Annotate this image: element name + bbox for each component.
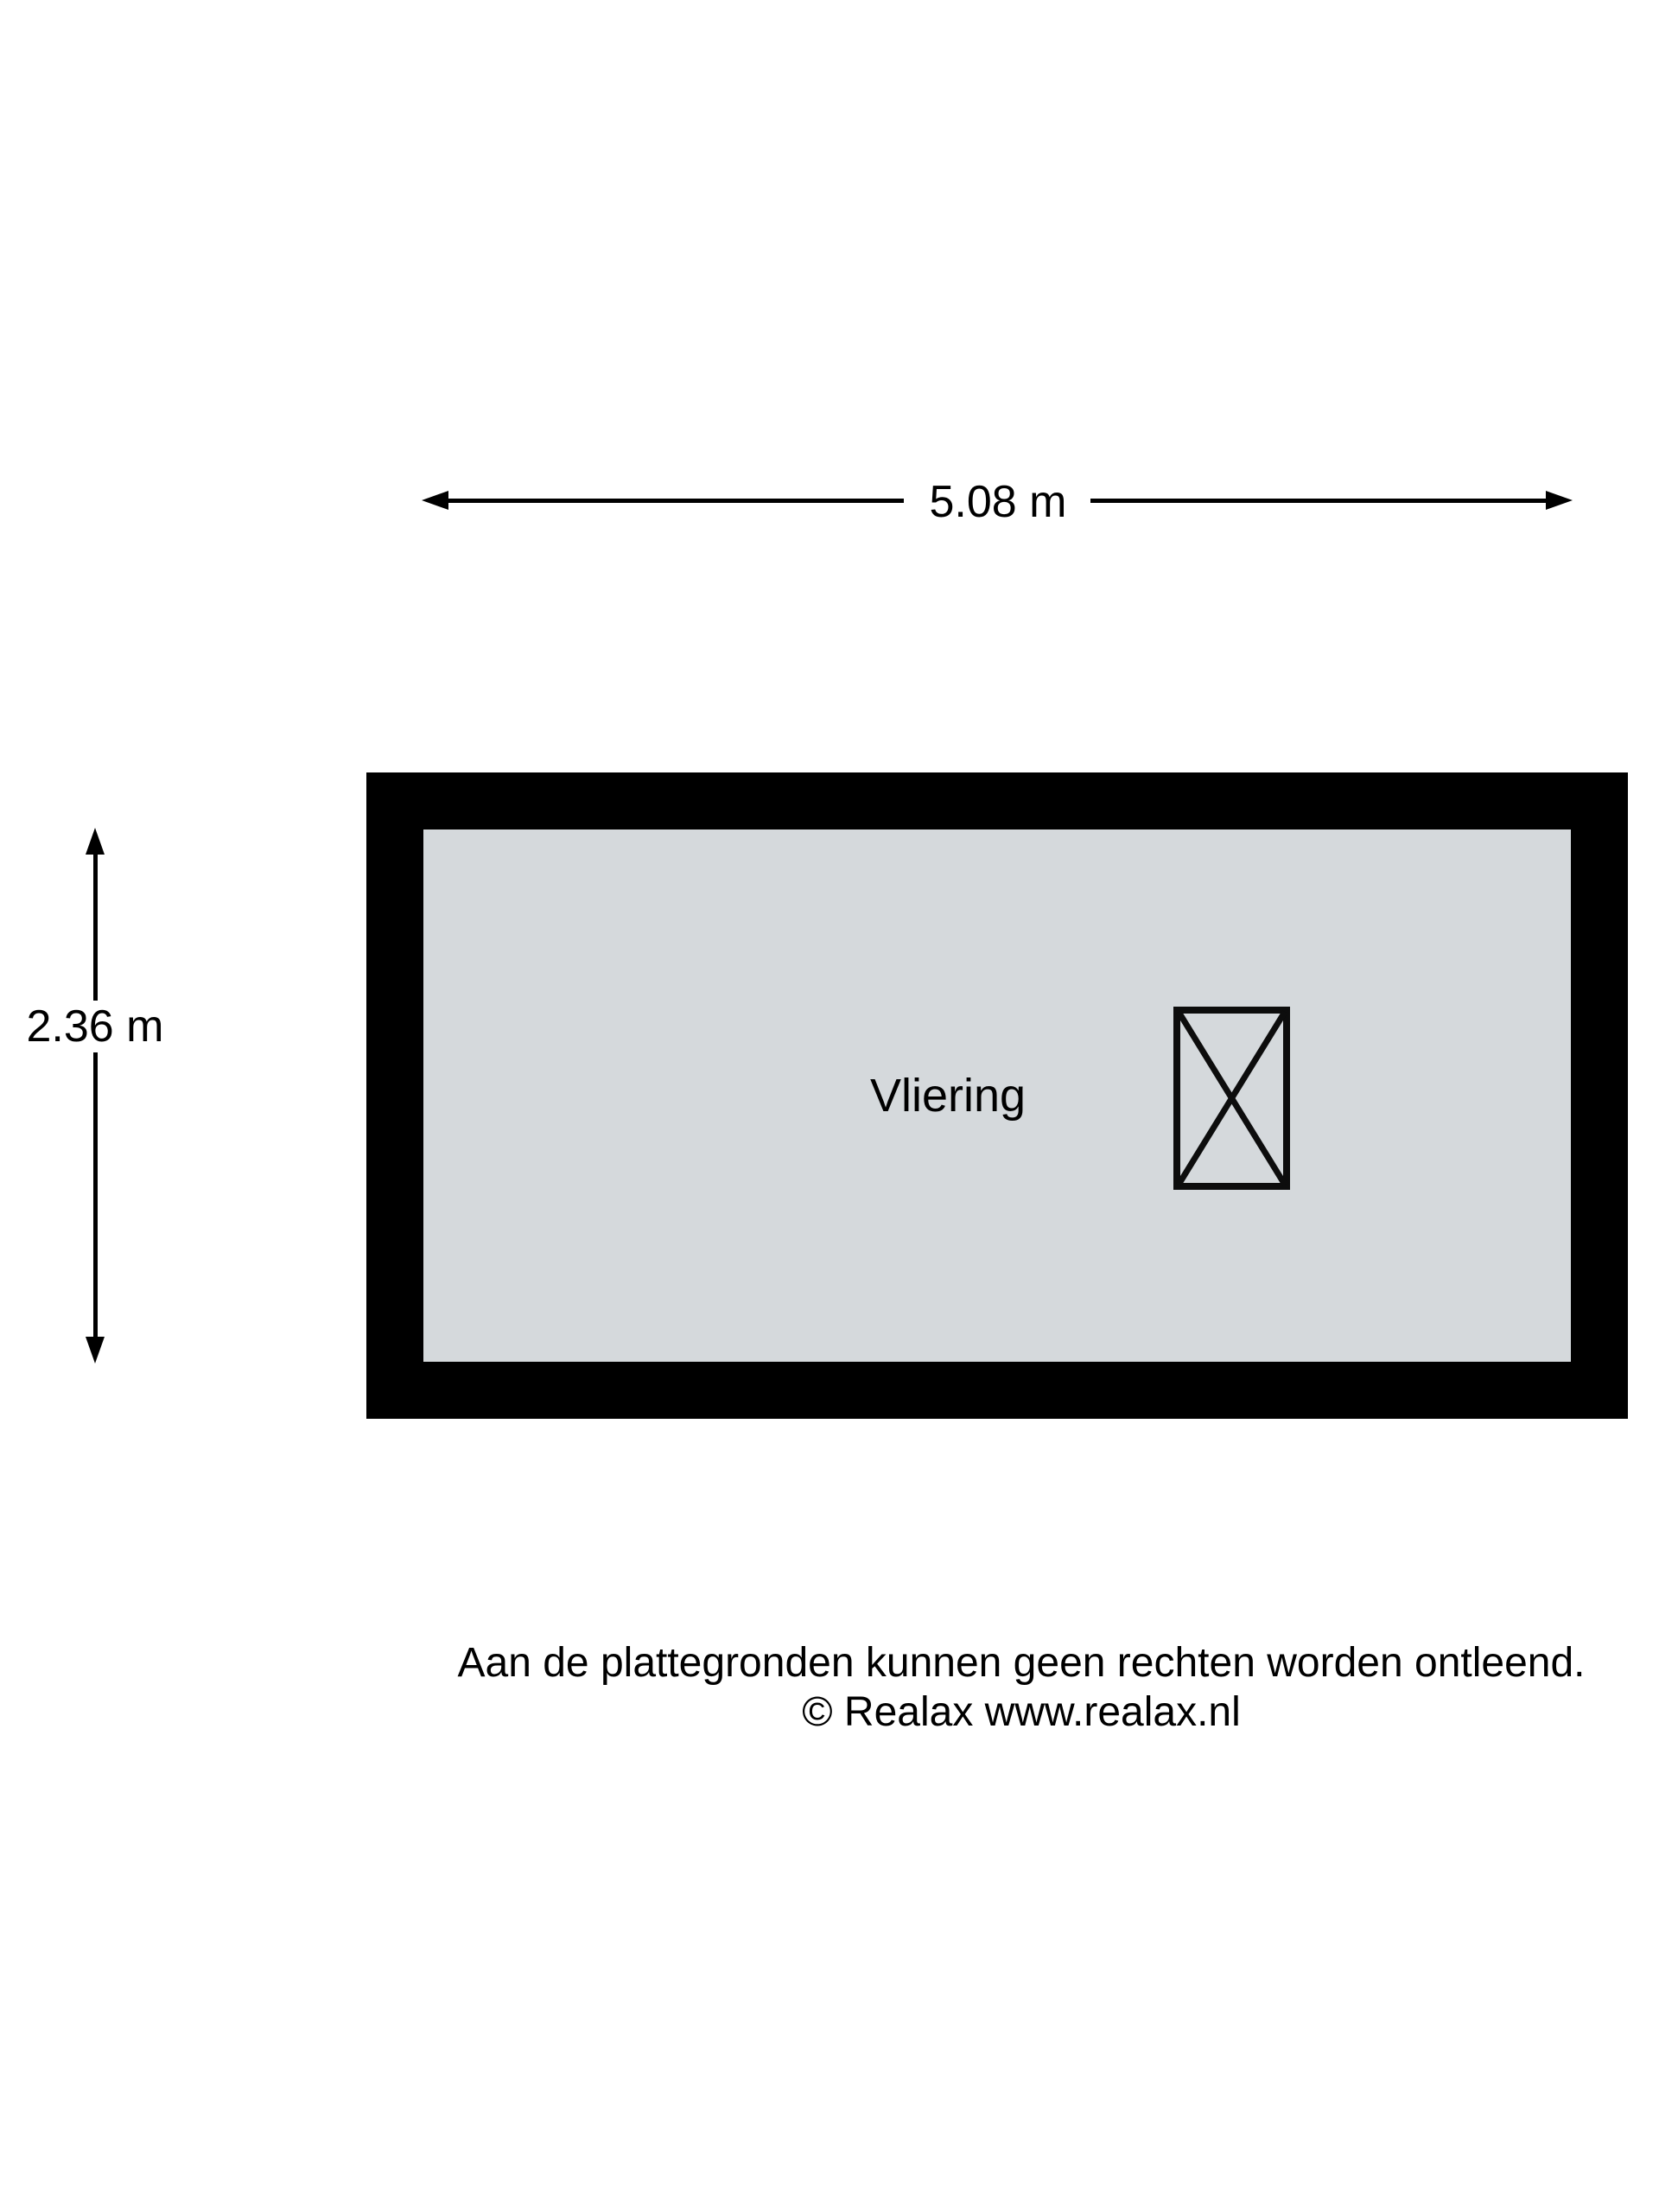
room-label: Vliering xyxy=(870,1072,1026,1119)
height-dimension-line-top xyxy=(93,852,98,1001)
hatch-cross-icon xyxy=(1173,1007,1290,1190)
arrow-down-icon xyxy=(86,1337,105,1363)
width-dimension-line-left xyxy=(444,499,904,503)
width-dimension-label: 5.08 m xyxy=(930,480,1067,524)
copyright-line: © Realax www.realax.nl xyxy=(457,1688,1585,1737)
arrow-up-icon xyxy=(86,828,105,855)
height-dimension-label: 2.36 m xyxy=(27,1004,164,1049)
hatch-opening-symbol xyxy=(1173,1007,1290,1190)
footer-disclaimer: Aan de plattegronden kunnen geen rechten… xyxy=(457,1638,1585,1737)
disclaimer-line: Aan de plattegronden kunnen geen rechten… xyxy=(457,1638,1585,1688)
height-dimension-line-bottom xyxy=(93,1052,98,1339)
arrow-right-icon xyxy=(1546,491,1573,510)
width-dimension-line-right xyxy=(1090,499,1548,503)
